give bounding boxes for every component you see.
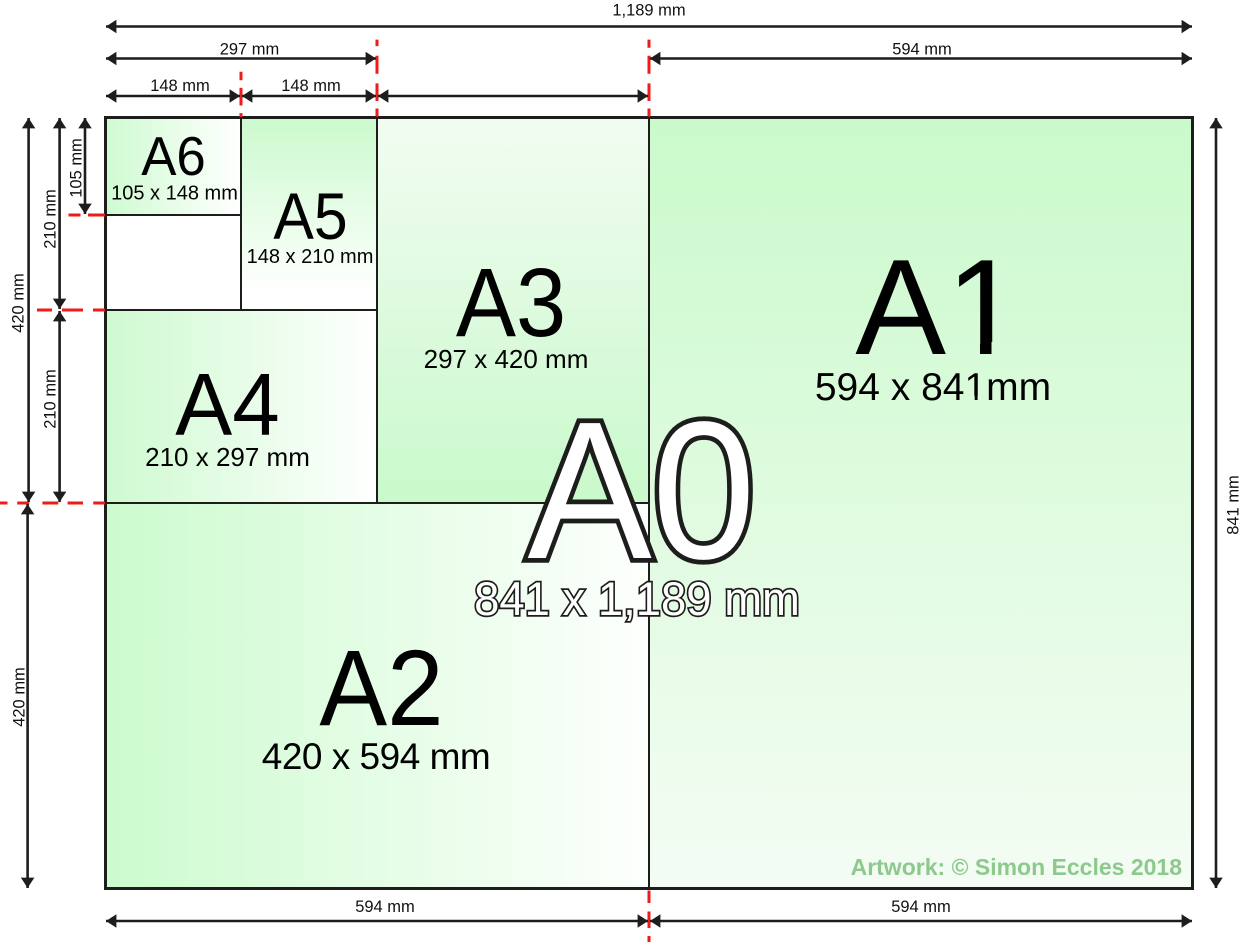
svg-text:A4: A4 — [175, 357, 279, 454]
svg-text:210 mm: 210 mm — [42, 369, 60, 429]
svg-text:841 mm: 841 mm — [1225, 475, 1243, 535]
svg-text:210 mm: 210 mm — [42, 189, 60, 249]
svg-text:420 mm: 420 mm — [10, 273, 28, 333]
svg-text:841 x 1,189 mm: 841 x 1,189 mm — [474, 572, 800, 625]
svg-text:A1: A1 — [855, 231, 1021, 383]
svg-text:A6: A6 — [141, 126, 206, 187]
svg-text:594 x 841mm: 594 x 841mm — [815, 366, 1051, 409]
svg-text:105 x 148 mm: 105 x 148 mm — [111, 183, 238, 205]
svg-text:105 mm: 105 mm — [68, 138, 86, 198]
svg-text:1,189 mm: 1,189 mm — [612, 2, 685, 20]
svg-text:297 x 420 mm: 297 x 420 mm — [424, 344, 589, 374]
svg-text:A3: A3 — [456, 248, 566, 357]
svg-text:A2: A2 — [319, 628, 443, 749]
svg-text:A0: A0 — [527, 381, 755, 600]
svg-text:420 mm: 420 mm — [11, 667, 29, 727]
svg-text:A5: A5 — [273, 181, 347, 254]
svg-text:420 x 594 mm: 420 x 594 mm — [262, 736, 490, 777]
svg-text:Artwork: © Simon Eccles 2018: Artwork: © Simon Eccles 2018 — [851, 854, 1183, 880]
svg-text:594 mm: 594 mm — [892, 41, 952, 59]
svg-text:594 mm: 594 mm — [355, 898, 415, 916]
svg-text:297 mm: 297 mm — [220, 41, 280, 59]
svg-text:148 mm: 148 mm — [281, 77, 341, 95]
svg-text:148 mm: 148 mm — [150, 77, 210, 95]
svg-text:148 x 210 mm: 148 x 210 mm — [247, 246, 374, 268]
svg-text:210 x 297 mm: 210 x 297 mm — [145, 442, 310, 472]
svg-text:594 mm: 594 mm — [891, 898, 951, 916]
